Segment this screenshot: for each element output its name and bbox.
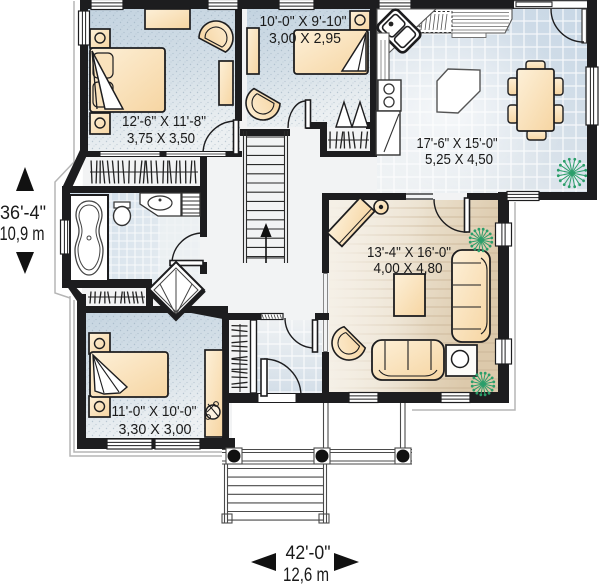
svg-text:13'-4" X 16'-0": 13'-4" X 16'-0" [367,244,451,261]
svg-text:12,6 m: 12,6 m [283,565,329,585]
svg-text:5,25 X 4,50: 5,25 X 4,50 [425,151,493,168]
svg-text:4,00 X 4,80: 4,00 X 4,80 [374,260,443,277]
svg-text:36'-4": 36'-4" [0,203,46,224]
svg-text:10,9 m: 10,9 m [0,224,45,245]
svg-text:3,30 X 3,00: 3,30 X 3,00 [119,421,192,438]
svg-text:3,75 X 3,50: 3,75 X 3,50 [127,130,195,147]
svg-text:11'-0" X 10'-0": 11'-0" X 10'-0" [112,403,197,420]
svg-text:3,00 X 2,95: 3,00 X 2,95 [269,30,341,47]
svg-text:12'-6" X 11'-8": 12'-6" X 11'-8" [122,113,206,130]
svg-text:42'-0": 42'-0" [286,543,331,564]
svg-text:17'-6" X 15'-0": 17'-6" X 15'-0" [417,135,498,152]
svg-text:10'-0" X 9'-10": 10'-0" X 9'-10" [260,13,347,30]
